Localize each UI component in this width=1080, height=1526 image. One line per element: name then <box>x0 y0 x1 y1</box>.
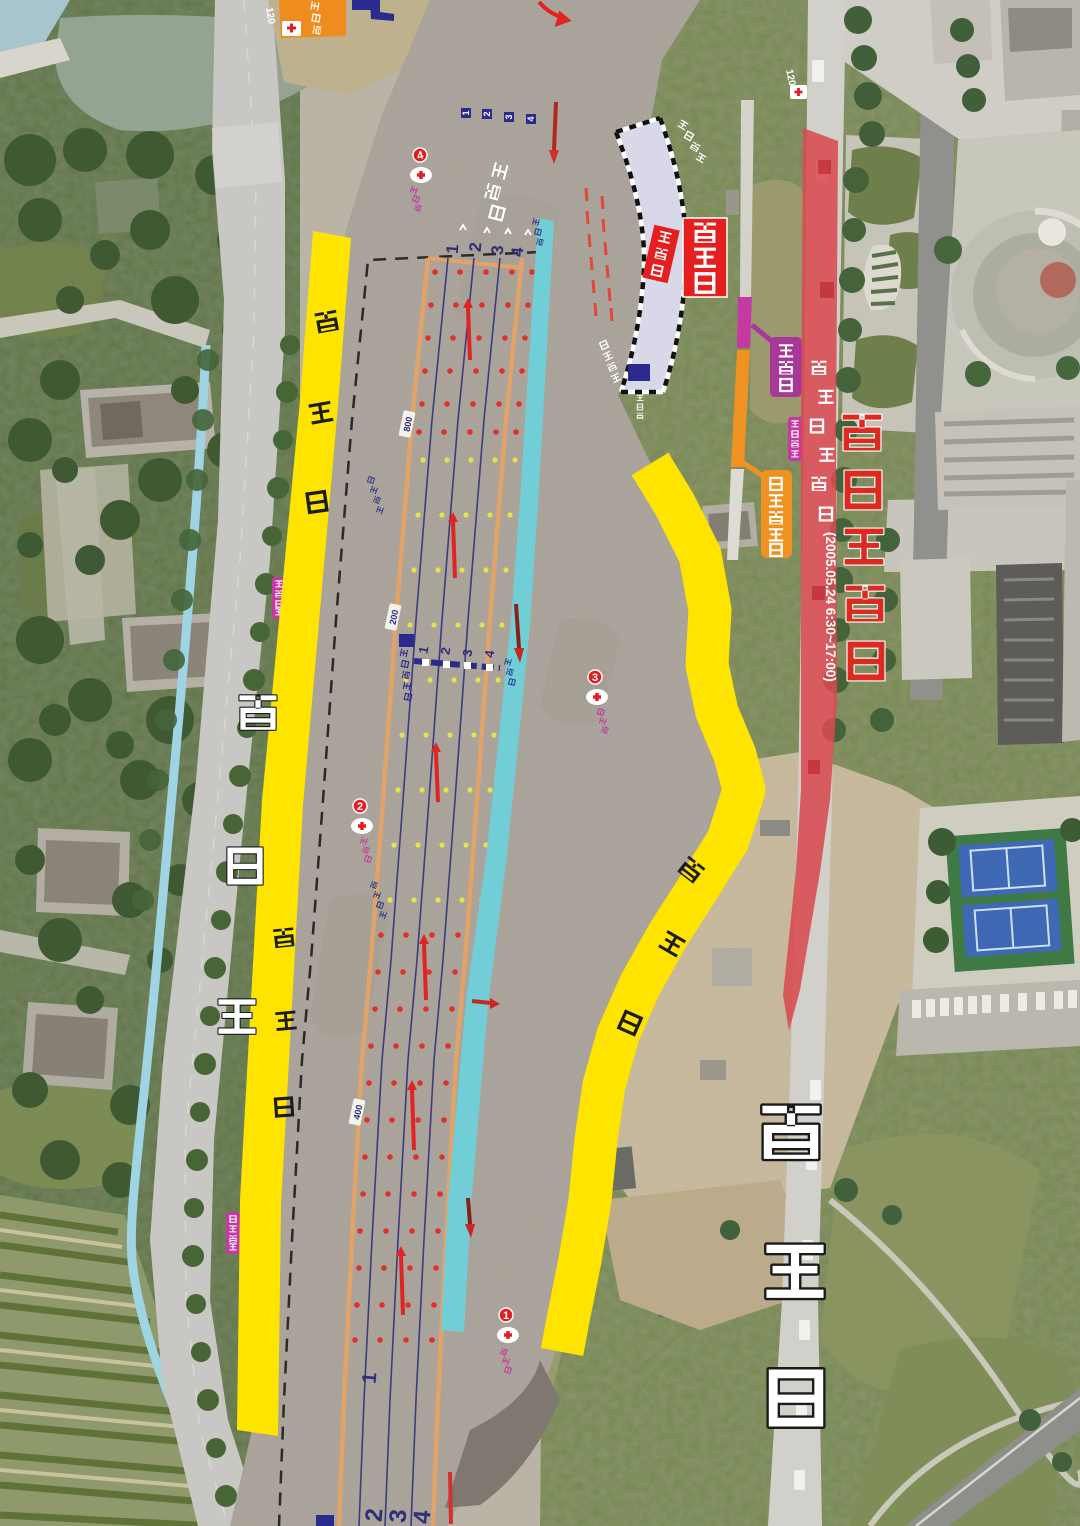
svg-text:3: 3 <box>504 114 514 119</box>
svg-text:1: 1 <box>359 1372 382 1385</box>
svg-text:2: 2 <box>466 241 486 252</box>
svg-text:1: 1 <box>443 243 463 254</box>
svg-text:3: 3 <box>592 672 598 684</box>
svg-text:3: 3 <box>488 244 508 255</box>
svg-text:4: 4 <box>526 116 536 121</box>
svg-text:(2005.05.24 6:30~17:00): (2005.05.24 6:30~17:00) <box>823 532 838 682</box>
svg-text:2: 2 <box>357 801 363 813</box>
svg-text:1: 1 <box>461 110 471 115</box>
svg-text:1: 1 <box>503 1310 509 1322</box>
svg-text:2: 2 <box>482 111 492 116</box>
